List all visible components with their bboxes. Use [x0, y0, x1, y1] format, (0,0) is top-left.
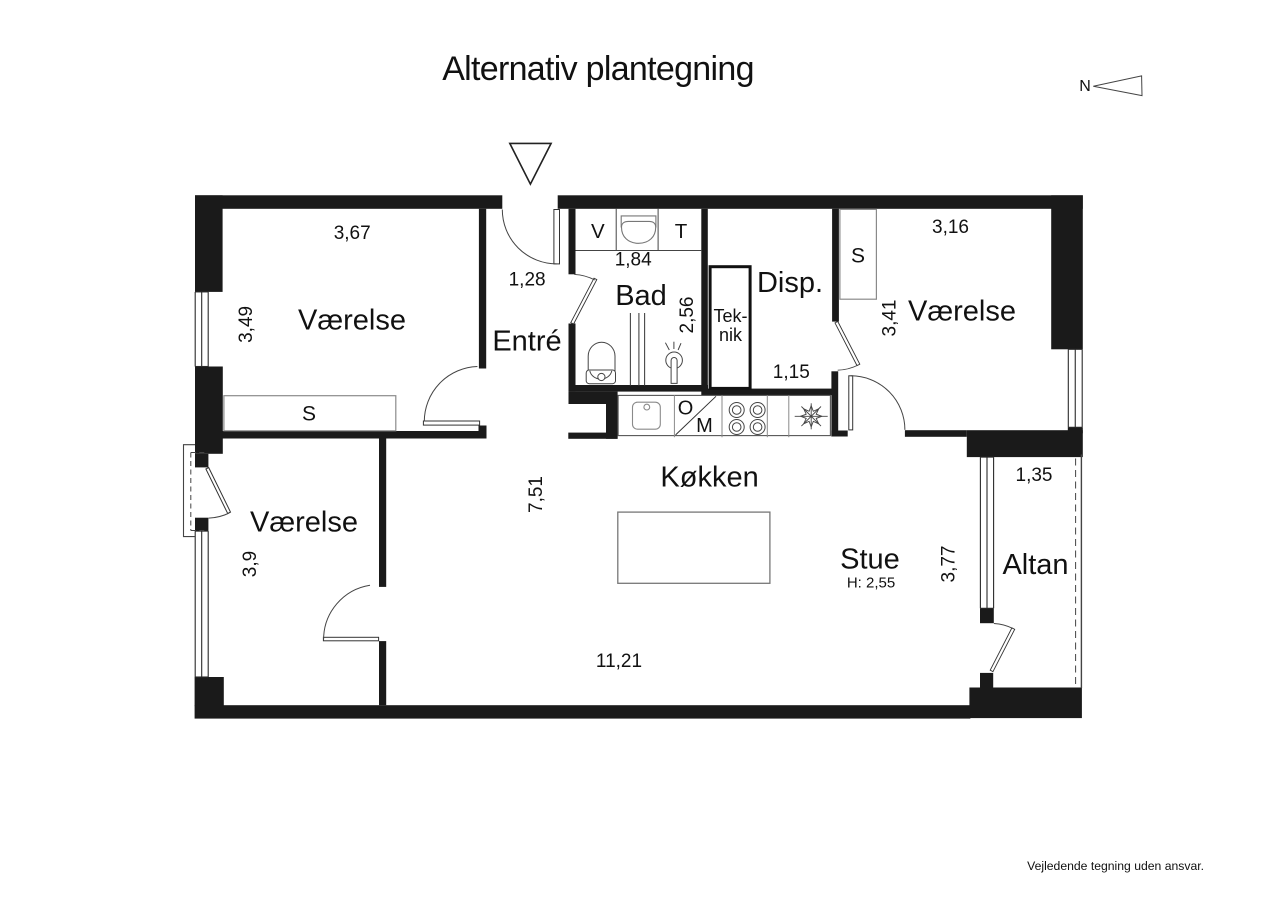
svg-text:11,21: 11,21 — [596, 651, 642, 672]
svg-text:Værelse: Værelse — [908, 296, 1016, 328]
svg-text:Stue: Stue — [840, 544, 900, 576]
svg-text:H: 2,55: H: 2,55 — [847, 575, 895, 592]
svg-text:N: N — [1079, 78, 1091, 95]
svg-text:S: S — [302, 403, 316, 426]
svg-text:O: O — [678, 397, 694, 419]
svg-text:3,16: 3,16 — [932, 217, 969, 238]
svg-text:nik: nik — [719, 325, 743, 345]
svg-text:1,15: 1,15 — [773, 362, 810, 383]
svg-text:2,56: 2,56 — [677, 297, 698, 334]
svg-text:3,9: 3,9 — [240, 551, 261, 577]
svg-text:T: T — [675, 220, 688, 243]
svg-text:Altan: Altan — [1002, 549, 1068, 581]
svg-text:Værelse: Værelse — [298, 305, 406, 337]
svg-text:Køkken: Køkken — [660, 462, 758, 494]
svg-text:Disp.: Disp. — [757, 267, 823, 299]
svg-text:1,35: 1,35 — [1016, 465, 1053, 486]
svg-text:1,84: 1,84 — [615, 250, 652, 271]
svg-text:Værelse: Værelse — [250, 507, 358, 539]
svg-text:1,28: 1,28 — [509, 270, 546, 291]
svg-text:7,51: 7,51 — [526, 476, 547, 513]
svg-text:Entré: Entré — [492, 326, 561, 358]
svg-text:3,67: 3,67 — [334, 223, 371, 244]
svg-text:M: M — [696, 415, 713, 437]
svg-text:3,77: 3,77 — [938, 546, 959, 583]
svg-text:Tek-: Tek- — [713, 306, 747, 326]
svg-text:3,41: 3,41 — [879, 300, 900, 337]
svg-text:Bad: Bad — [615, 280, 667, 312]
svg-text:V: V — [591, 220, 605, 243]
svg-text:3,49: 3,49 — [236, 306, 257, 343]
svg-text:Vejledende tegning uden ansvar: Vejledende tegning uden ansvar. — [1027, 859, 1204, 873]
svg-text:S: S — [851, 245, 865, 268]
svg-text:Alternativ plantegning: Alternativ plantegning — [442, 50, 754, 88]
